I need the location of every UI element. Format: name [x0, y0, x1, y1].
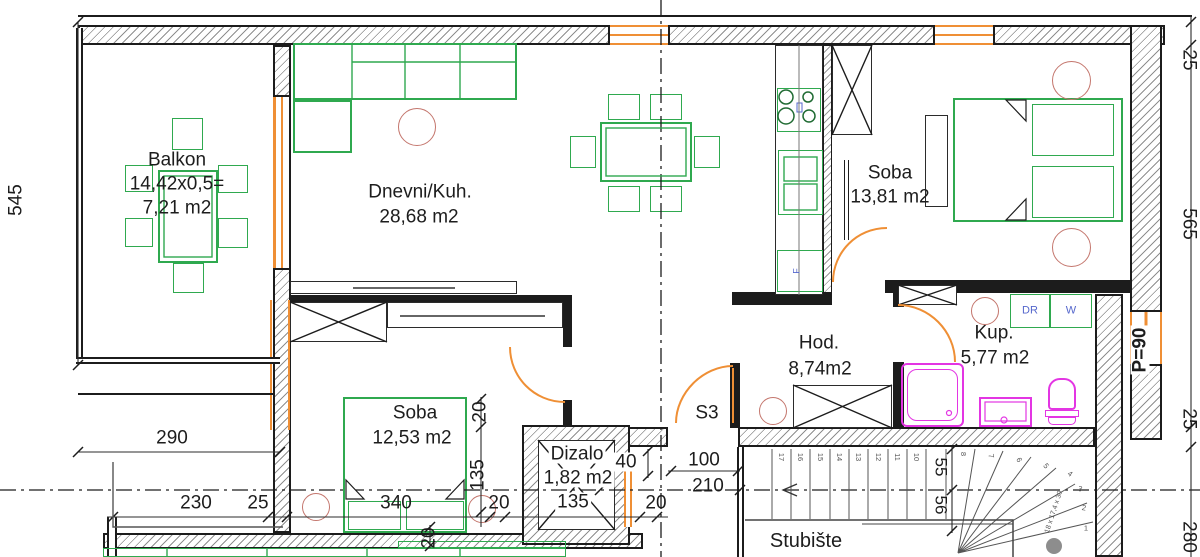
wall-soba2-right-upper [563, 295, 572, 347]
wall-right-lower [1130, 364, 1162, 440]
dnevni-lamp [398, 108, 436, 146]
kup-label: Kup. [974, 324, 1013, 343]
stair-num-15: 15 [816, 453, 824, 461]
lower-balcony-furniture [103, 548, 566, 557]
balkon-label: Balkon [148, 151, 206, 170]
dining-table [600, 122, 692, 182]
balcony-chair-left-2 [125, 218, 153, 247]
kup-lamp [971, 297, 999, 325]
wall-balcony-divider-top [273, 45, 291, 97]
stair-num-12: 12 [874, 453, 882, 461]
dim-340: 340 [380, 494, 412, 513]
dizalo-area: 1,82 m2 [542, 469, 615, 488]
soba1-label: Soba [868, 164, 912, 183]
dim-25: 25 [247, 494, 268, 513]
kitchen-stove [777, 88, 821, 132]
walkline-arrow [783, 484, 797, 496]
stair-num-4: 4 [1066, 470, 1074, 479]
stair-num-6: 6 [1015, 457, 1024, 464]
dim-290: 290 [156, 429, 188, 448]
stair-num-14: 14 [835, 453, 843, 461]
balcony-slab-line [78, 393, 273, 395]
balcony-chair-top [172, 118, 203, 150]
balcony-window [273, 97, 291, 268]
hod-lamp [759, 397, 787, 425]
wall-entry-stub [628, 427, 668, 447]
wall-landing-left [737, 447, 744, 557]
stair-num-5: 5 [1042, 462, 1050, 470]
dryer-label: DR [1022, 306, 1038, 317]
parapet-note: P=90 [1131, 326, 1150, 375]
dining-chair-top-2 [650, 94, 682, 120]
soba2-area: 12,53 m2 [372, 429, 451, 448]
balcony-chair-bottom [173, 263, 204, 293]
elevator-door [624, 471, 632, 527]
floor-plan: Balkon 14,42x0,5= 7,21 m2 Dnevni/Kuh. 28… [0, 0, 1200, 557]
stair-num-11: 11 [893, 453, 901, 461]
dnevni-area: 28,68 m2 [379, 208, 458, 227]
dim-v20b: 20 [420, 527, 439, 548]
wall-hall-left [730, 363, 740, 428]
balcony-left-edge [76, 28, 83, 362]
stair-num-2: 2 [1081, 504, 1086, 512]
hod-area: 8,74m2 [788, 360, 851, 379]
window-top-1 [610, 25, 668, 45]
hod-niche [898, 285, 957, 305]
dim-545: 545 [7, 184, 26, 216]
wall-soba2-right-lower [563, 400, 572, 427]
wall-hall-bottom [738, 427, 1095, 447]
stair-newel [1046, 538, 1062, 554]
dim-230: 230 [180, 494, 212, 513]
outer-line-top [78, 15, 1192, 17]
dim-20a: 20 [488, 494, 509, 513]
stair-note: 18 x 17,4 x 30 [1044, 490, 1064, 534]
soba2-pillow-2 [406, 501, 464, 530]
dim-20b: 20 [645, 494, 666, 513]
soba2-label: Soba [393, 404, 437, 423]
kup-area: 5,77 m2 [961, 349, 1030, 368]
dim-v135: 135 [469, 459, 488, 491]
stair-num-16: 16 [796, 453, 804, 461]
window-top-2 [935, 25, 993, 45]
toilet-seat-line [1045, 410, 1079, 417]
fridge-label: F [793, 268, 802, 274]
dizalo-label: Dizalo [549, 445, 606, 464]
washer-label: W [1066, 306, 1076, 317]
sofa-return [293, 100, 352, 153]
dining-chair-bottom-1 [608, 186, 640, 212]
stair-num-1: 1 [1084, 524, 1088, 532]
balcony-bottom-edge [76, 357, 280, 364]
door-soba2 [510, 347, 565, 402]
soba1-pillow-1 [1032, 104, 1114, 156]
dim-135a: 135 [555, 493, 591, 512]
stair-num-3: 3 [1077, 485, 1083, 493]
dining-chair-bottom-2 [650, 186, 682, 212]
dining-chair-top-1 [608, 94, 640, 120]
stair-num-13: 13 [854, 453, 862, 461]
stubiste-label: Stubište [770, 531, 842, 551]
hod-wardrobe [793, 385, 892, 428]
dim-40: 40 [613, 453, 638, 472]
entrance-door-code: S3 [695, 404, 718, 423]
stair-num-17: 17 [777, 453, 785, 461]
soba1-lamp-top [1052, 61, 1091, 100]
sofa-main [293, 43, 517, 100]
stair-num-7: 7 [987, 453, 995, 458]
dnevni-shelf [290, 281, 517, 294]
kitchen-sink [778, 150, 823, 215]
dnevni-label: Dnevni/Kuh. [368, 183, 472, 202]
soba2-wardrobe [290, 302, 387, 342]
wall-top-a [78, 25, 610, 45]
shower-inner [907, 369, 958, 421]
dim-right-25-top: 25 [1180, 49, 1199, 70]
dim-100: 100 [688, 451, 720, 470]
dining-chair-right [694, 136, 720, 168]
soba2-lamp-left [302, 493, 330, 521]
door-soba1 [833, 228, 887, 282]
toilet-base [1048, 417, 1076, 425]
dining-chair-left [570, 136, 596, 168]
soba1-area: 13,81 m2 [850, 188, 929, 207]
wall-right-upper [1130, 25, 1162, 312]
wall-kitchen [823, 45, 832, 295]
stair-num-10: 10 [912, 453, 920, 461]
soba1-lamp-bottom [1052, 228, 1091, 267]
dim-210: 210 [692, 477, 724, 496]
dim-56: 56 [933, 496, 950, 515]
soba2-desk [387, 302, 563, 328]
washbasin [979, 397, 1032, 427]
dim-right-280: 280 [1180, 521, 1199, 553]
soba1-pillow-2 [1032, 166, 1114, 218]
soba1-wardrobe [832, 45, 872, 135]
dim-right-565: 565 [1180, 208, 1199, 240]
dim-55: 55 [933, 458, 950, 477]
balcony-chair-right-2 [218, 218, 248, 248]
dim-v20: 20 [471, 401, 490, 422]
soba1-wardrobe-track [844, 160, 849, 240]
toilet-bowl [1048, 378, 1076, 410]
lower-window-line-1 [270, 300, 272, 430]
stair-num-8: 8 [959, 452, 967, 456]
balkon-area: 7,21 m2 [143, 199, 212, 218]
wall-top-b [668, 25, 935, 45]
wall-stairwell-right [1095, 294, 1123, 557]
dim-right-25-mid: 25 [1180, 408, 1199, 429]
door-kup [898, 305, 955, 362]
hod-label: Hod. [799, 334, 839, 353]
balkon-formula: 14,42x0,5= [130, 175, 225, 194]
